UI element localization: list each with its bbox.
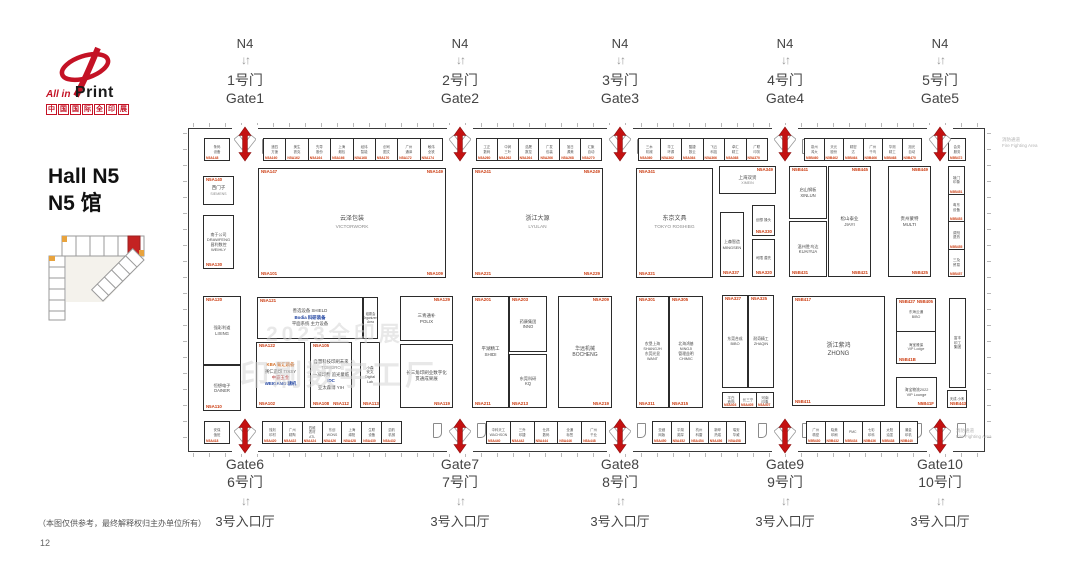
gate-marker-icon <box>449 418 471 454</box>
wall-ticks-bottom <box>193 453 980 457</box>
gate-label-en: Gate1 <box>226 90 264 106</box>
gate-label-en: Gate4 <box>766 90 804 106</box>
booth: 恒想电子 DAINERN5A110 <box>203 365 241 411</box>
booth: 云泽包装VICTORWORKN5A147N5A149N5A101N5A109 <box>258 168 446 278</box>
gate-label-zh: 7号门 <box>430 472 489 492</box>
booth-name: 浙江紫鸿 ZHONG <box>826 343 850 359</box>
fire-lane-note-top: 消防通道 Fire Fighting Area <box>1002 137 1038 149</box>
gate-label-zh: 8号门 <box>590 472 649 492</box>
booth-name: 长三角印刷业数字化 贯通成果展 <box>406 370 447 382</box>
booth: 司限 潜先N5A320 <box>752 239 775 277</box>
booth-code: N5A105 <box>313 344 329 348</box>
booth-code: N5A420 <box>264 439 276 443</box>
booth-name: 西门子 <box>212 185 226 191</box>
booth: KBA 新汇装备赛仁造印 TISSY中霸五金WEIGANG 精机N5A122N5… <box>256 342 305 408</box>
booth: 农垦上海 SHANGJH 东莞光显 WANTN5A301N5A311 <box>636 296 669 408</box>
booth: 北海鸿基 NINGJI 管理益明 CHIMICN5A305N5A315 <box>669 296 703 408</box>
booth-code: N5A249 <box>584 170 600 174</box>
booth-code: N5A327 <box>725 297 741 301</box>
booth-code: N5A325 <box>751 297 767 301</box>
gate-label-bottom: Gate88号门↓↑3号入口厅 <box>590 456 649 530</box>
booth-code: N5A448 <box>583 439 595 443</box>
two-way-arrow-icon: ↓↑ <box>441 51 479 70</box>
gate-label-top: N4↓↑5号门Gate5 <box>921 36 959 106</box>
booth-code: N5A407 <box>758 403 770 407</box>
two-way-arrow-icon: ↓↑ <box>590 492 649 511</box>
booth-code: N5A140 <box>206 178 222 182</box>
strip-booth: 全通 标签N5A446 <box>557 421 582 444</box>
gate-label-top: N4↓↑4号门Gate4 <box>766 36 804 106</box>
booth-name: 华远机械 BOCHENG <box>572 346 597 359</box>
two-way-arrow-icon: ↓↑ <box>910 492 969 511</box>
entrance-hall-label: 3号入口厅 <box>215 511 274 530</box>
booth-code: N5A362 <box>662 156 674 160</box>
booth-code: N5B431 <box>792 271 808 275</box>
booth-name: 富丰 印工 集团 <box>954 336 961 350</box>
entrance-hall-label: 3号入口厅 <box>755 511 814 530</box>
strip-booth: 晓美 印刷N5B432 <box>825 421 845 444</box>
booth-cell: 三及 贸易N5B457 <box>949 249 964 277</box>
strip-booth: 太阳 油墨N5B438 <box>880 421 900 444</box>
booth-code: N5A160 <box>265 156 277 160</box>
booth-code: N5A221 <box>475 272 491 276</box>
two-way-arrow-icon: ↓↑ <box>430 492 489 511</box>
strip-booth: 广州 千鸟N5B466 <box>863 138 884 161</box>
booth-code: N5A209 <box>593 298 609 302</box>
booth-name: 启山钢板 XINLUN <box>800 187 817 198</box>
two-way-arrow-icon: ↓↑ <box>601 51 639 70</box>
booth: 富丰 印工 集团 <box>949 298 966 388</box>
booth-code: N5A364 <box>683 156 695 160</box>
booth-name: 东莞科研 KQ <box>520 376 537 387</box>
n4-hall-label: N4 <box>921 36 959 51</box>
booth-code: N5B441 <box>792 168 808 172</box>
gate-label-zh: 3号门 <box>601 70 639 90</box>
strip-booth: 生联 设备N5A430 <box>361 421 382 444</box>
door-icon <box>758 423 767 438</box>
gate-marker-icon <box>774 126 796 162</box>
n4-hall-label: N4 <box>601 36 639 51</box>
booth: 小森 安文 Digital LabN5A113 <box>360 342 380 408</box>
booth-name: 温州胜鸟达 KUAIYUA <box>798 244 819 255</box>
strip-booth: 东创 WONSN5A426 <box>322 421 343 444</box>
strip-booth: 仕邦 数码N5A444 <box>534 421 559 444</box>
booth-code: N5A219 <box>593 402 609 406</box>
gate-label-top: N4↓↑2号门Gate2 <box>441 36 479 106</box>
booth-code: N5B440 <box>901 439 913 443</box>
booth-strip-top: 三木 机械N5A360华工 环源N5A362酷捷 数云N5A364飞云 科技N5… <box>638 138 768 161</box>
floorplan-page: All in Print 中国国际全印展 Hall N5 N5 馆 <box>0 0 1080 579</box>
gate-label-en: Gate8 <box>590 456 649 472</box>
booth-code: N5A129 <box>434 298 450 302</box>
booth: 西门子SIEMENSN5A140 <box>203 176 234 205</box>
booth-name: 平湖精工 SHIDI <box>482 346 500 358</box>
strip-booth: 泉州 鸿大N5B460 <box>804 138 825 161</box>
booth-strip-bottom: 亚细 网版N5A450平湖 英厚N5A452杭州 科雷N5A454新晔 热熔N5… <box>652 421 746 444</box>
booth: 创想 操头N5A330 <box>752 205 775 236</box>
booth-name: 南于公司 DRAWFENG 昌利数控 WEIHLY <box>207 232 230 253</box>
booth-code: N5A422 <box>284 439 296 443</box>
strip-booth: 新晔 热熔N5A456 <box>708 421 728 444</box>
booth-strip-top: 工正 数码N5A260中润 三叶N5A262浩晟 数控N5A264广发 包装N5… <box>476 138 602 161</box>
booth-code: N5A101 <box>261 272 277 276</box>
logo-print-text: Print <box>75 84 114 101</box>
strip-booth: 天元 股份N5B462 <box>824 138 845 161</box>
strip-booth: 三木 机械N5A360 <box>638 138 661 161</box>
logo-cn-char: 中 <box>46 104 57 115</box>
hall-title-zh: N5 馆 <box>48 190 119 217</box>
gate-label-en: Gate5 <box>921 90 959 106</box>
all-in-print-logo: All in Print 中国国际全印展 <box>46 46 136 115</box>
strip-booth: 广发 包装N5A266 <box>538 138 560 161</box>
booth-code: N5B417 <box>795 298 811 302</box>
booth-code: N5A428 <box>343 439 355 443</box>
booth-code: N5A149 <box>427 170 443 174</box>
booth: 温州胜鸟达 KUAIYUAN5B431 <box>789 221 827 277</box>
strip-booth: 先导 股份N5A164 <box>308 138 331 161</box>
gate-label-bottom: Gate1010号门↓↑3号入口厅 <box>910 456 969 530</box>
two-way-arrow-icon: ↓↑ <box>226 51 264 70</box>
two-way-arrow-icon: ↓↑ <box>755 492 814 511</box>
booth-code: N5A170 <box>377 156 389 160</box>
booth-code: N5B472 <box>950 156 962 160</box>
strip-booth: 亚细 网版N5A450 <box>652 421 672 444</box>
strip-booth: 广州 精陶N5A422 <box>282 421 303 444</box>
two-way-arrow-icon: ↓↑ <box>921 51 959 70</box>
booth: 浙江紫鸿 ZHONGN5B417N5B411 <box>792 296 885 406</box>
fire-lane-note-bottom: 消防通道 Fire Fighting Area <box>956 428 992 440</box>
booth-code: N5B434 <box>845 439 857 443</box>
booth: 耐奇精工 ZHAQINN5A325 <box>748 295 774 388</box>
booth-name: 浙江大源 <box>525 216 549 224</box>
booth-code: N5A321 <box>639 272 655 276</box>
booth: 松山泰业 JIAYIN5B445N5B421 <box>828 166 871 277</box>
strip-booth: 华测 精工N5B468 <box>882 138 903 161</box>
booth-name: 东京文具 <box>662 216 686 224</box>
booth-code: N5B466 <box>865 156 877 160</box>
booth-code: N5A442 <box>512 439 524 443</box>
booth-code: N5B41B <box>899 358 916 362</box>
strip-booth: 敏伟 全铁N5A174 <box>420 138 443 161</box>
disclaimer: （本图仅供参考，最终解释权归主办单位所有） <box>38 518 206 529</box>
booth-code: N5A368 <box>726 156 738 160</box>
strip-booth: 汇聚 自动N5A270 <box>580 138 602 161</box>
booth-code: N5A432 <box>383 439 395 443</box>
booth-code: N5A201 <box>475 298 491 302</box>
hall-title-en: Hall N5 <box>48 163 119 190</box>
page-number: 12 <box>40 538 50 548</box>
booth-code: N5A370 <box>748 156 760 160</box>
gate-marker-icon <box>774 418 796 454</box>
booth-name: 三青通补 POLIX <box>418 313 436 325</box>
booth-code: N5B430 <box>808 439 820 443</box>
booth-subname: VICTORWORK <box>336 225 369 230</box>
logo-allin-text: All in <box>46 89 70 100</box>
booth: 长三角印刷业数字化 贯通成果展N5A119 <box>400 344 453 408</box>
strip-booth: 上海 绵阳N5A428 <box>341 421 362 444</box>
booth-code: N5A119 <box>434 402 450 406</box>
logo-cn-char: 展 <box>118 104 129 115</box>
gate-marker-icon <box>609 418 631 454</box>
gate-marker-icon <box>929 126 951 162</box>
strip-booth: 瑞安 华威N5A458 <box>726 421 746 444</box>
booth-cell: 境门 印象N5B451 <box>949 167 964 194</box>
venue-overview-minimap <box>46 232 148 324</box>
gate-label-zh: 6号门 <box>215 472 274 492</box>
logo-cn-char: 印 <box>106 104 117 115</box>
booth-name: 组委会 Organizers Area <box>363 312 378 324</box>
booth-code: N5B464 <box>845 156 857 160</box>
booth: 善选设备 SHIELDBodia 科研装备平面系统 主力设备N5A121 <box>257 297 363 339</box>
booth-code: N5A454 <box>691 439 703 443</box>
strip-booth: 中润 三叶N5A262 <box>497 138 519 161</box>
gate-label-zh: 1号门 <box>226 70 264 90</box>
booth-code: N5A264 <box>520 156 532 160</box>
booth-code: N5A108 <box>313 402 329 406</box>
booth-name: 贵州蒙特 MULTI <box>901 216 919 228</box>
booth: 天成 小禾N5B443 <box>947 390 967 408</box>
booth-strip-top: 条码 设备N5A148 <box>204 138 230 161</box>
booth-code: N5B445 <box>852 168 868 172</box>
strip-booth: 卓汇 精工N5A368 <box>724 138 747 161</box>
booth-code: N5A424 <box>304 439 316 443</box>
booth-code: N5A148 <box>206 156 218 160</box>
n4-hall-label: N4 <box>441 36 479 51</box>
booth-code: N5A452 <box>673 439 685 443</box>
booth-code: N5B443 <box>950 402 966 406</box>
strip-booth: 飞云 科技N5A366 <box>703 138 726 161</box>
logo-cn-char: 国 <box>58 104 69 115</box>
booth-cell: 粤东 设备N5B453 <box>949 194 964 222</box>
booth-code: N5A426 <box>324 439 336 443</box>
strip-booth: 七彩 印科N5B436 <box>862 421 882 444</box>
booth-name: 东莞合成 BIBO <box>727 337 742 347</box>
gate-label-bottom: Gate99号门↓↑3号入口厅 <box>755 456 814 530</box>
booth-name: 强彩利道 LIXING <box>214 325 231 336</box>
booth-code: N5A450 <box>654 439 666 443</box>
strip-booth: 旭光 自动N5B470 <box>902 138 923 161</box>
booth: 组委会 Organizers Area <box>363 297 378 339</box>
booth-code: N5B411 <box>795 400 811 404</box>
gate-label-en: Gate3 <box>601 90 639 106</box>
booth-name: 创想 操头 <box>756 218 771 223</box>
entrance-hall-label: 3号入口厅 <box>430 511 489 530</box>
gate-label-en: Gate7 <box>430 456 489 472</box>
gate-label-zh: 5号门 <box>921 70 959 90</box>
strip-booth: 四维 表材 ATLN5A424 <box>302 421 323 444</box>
booth-name: 小森 安文 Digital Lab <box>365 366 375 385</box>
booth-name: 海宝物流2022 VIP Lounge <box>905 388 929 398</box>
booth-strip-top: 递四 方速N5A160美生 铁克N5A162先导 股份N5A164上海 烟包N5… <box>263 138 443 161</box>
booth: 华远机械 BOCHENGN5A209N5A219 <box>558 296 612 408</box>
booth-code: N5A211 <box>475 402 491 406</box>
booth-name: 松山泰业 JIAYI <box>841 216 859 228</box>
booth-code: N5A456 <box>710 439 722 443</box>
gate-marker-icon <box>234 418 256 454</box>
gate-label-bottom: Gate66号门↓↑3号入口厅 <box>215 456 274 530</box>
booth-code: N5B432 <box>827 439 839 443</box>
booth-cell: 调剂 退热N5B455 <box>949 221 964 249</box>
booth-code: N5B457 <box>950 272 962 276</box>
booth-strip-bottom: 安保 值班N5A418 <box>204 421 230 444</box>
gate-label-zh: 10号门 <box>910 472 969 492</box>
gate-label-zh: 2号门 <box>441 70 479 90</box>
booth-code: N5A270 <box>582 156 594 160</box>
gate-label-zh: 4号门 <box>766 70 804 90</box>
booth-logo-line: WEIGANG 精机 <box>265 381 296 387</box>
booth-cell: 河南 印象N5A407 <box>756 393 773 407</box>
booth-code: N5A120 <box>206 298 222 302</box>
booth: 自慧科技印刷未来TOMORO一减印费 追光童临IDC亚太森博 YIHN5A105… <box>310 342 352 408</box>
strip-booth: 创司 图文N5A170 <box>375 138 398 161</box>
door-icon <box>433 423 442 438</box>
strip-booth: 安保 值班N5A418 <box>204 421 230 444</box>
gate-label-zh: 9号门 <box>755 472 814 492</box>
booth-code: N5A174 <box>422 156 434 160</box>
booth-code: N5A330 <box>756 230 772 234</box>
wall-ticks-top <box>193 123 980 127</box>
booth-code: N5A320 <box>756 271 772 275</box>
booth-code: N5A164 <box>310 156 322 160</box>
booth-code: N5A315 <box>672 402 688 406</box>
booth-code: N5B468 <box>884 156 896 160</box>
booth-code: N5A405 <box>741 403 753 407</box>
booth-cell: 平白 首饰N5A403 <box>723 393 739 407</box>
booth-code: N5A403 <box>724 403 736 407</box>
strip-booth: 精密 达N5B464 <box>843 138 864 161</box>
strip-booth: 上海 烟包N5A166 <box>330 138 353 161</box>
gate-label-bottom: Gate77号门↓↑3号入口厅 <box>430 456 489 530</box>
booth-code: N5A262 <box>499 156 511 160</box>
booth-code: N5B436 <box>864 439 876 443</box>
booth-code: N5A444 <box>536 439 548 443</box>
booth: 上海双贤XIMEINN5A349 <box>719 166 776 194</box>
booth-code: N5A109 <box>427 272 443 276</box>
booth-name: 药康集团 INNO <box>520 319 537 330</box>
door-icon <box>637 423 646 438</box>
booth-name: 耐奇精工 ZHAQIN <box>753 337 768 347</box>
booth-name: 上海双贤 <box>739 175 757 181</box>
booth: 贵州蒙特 MULTIN5B449N5B425 <box>888 166 931 277</box>
booth-code: N5B427 <box>899 300 915 304</box>
gate-label-en: Gate2 <box>441 90 479 106</box>
strip-booth: 广联 印务N5A370 <box>746 138 769 161</box>
booth-code: N5A260 <box>478 156 490 160</box>
booth: 东莞合成 BIBON5A327 <box>722 295 748 388</box>
booth-code: N5B425 <box>912 271 928 275</box>
logo-cn-char: 全 <box>94 104 105 115</box>
gate-marker-icon <box>449 126 471 162</box>
booth-code: N5A121 <box>260 299 276 303</box>
strip-booth: 蚀刻 印材N5A420 <box>262 421 283 444</box>
strip-booth: 三乔 印捷N5A442 <box>510 421 535 444</box>
booth: 东海云通 BIBO海宝雅保 VIP LodgeN5B427N5B405N5B41… <box>896 298 936 364</box>
booth-subname: LYULAN <box>528 225 546 230</box>
logo-cn-char: 国 <box>70 104 81 115</box>
booth-code: N5A305 <box>672 298 688 302</box>
booth-code: N5B405 <box>917 300 933 304</box>
strip-booth: 潮金 印机N5B440 <box>899 421 919 444</box>
booth-logo-line: 平面系统 主力设备 <box>292 321 328 327</box>
booth-code: N5B438 <box>882 439 894 443</box>
strip-booth: 旭日 源美N5A268 <box>559 138 581 161</box>
gate-label-en: Gate6 <box>215 456 274 472</box>
booth-code: N5A430 <box>363 439 375 443</box>
booth-logo-line: 亚太森博 YIH <box>318 385 344 391</box>
strip-booth: 递四 方速N5A160 <box>263 138 286 161</box>
two-way-arrow-icon: ↓↑ <box>766 51 804 70</box>
strip-booth: 广州 精密N5B430 <box>806 421 826 444</box>
booth-name: 北海鸿基 NINGJI 管理益明 CHIMIC <box>678 342 693 362</box>
gate-label-en: Gate10 <box>910 456 969 472</box>
booth-code: N5A458 <box>728 439 740 443</box>
booth-code: N5A311 <box>639 402 655 406</box>
gate-marker-icon <box>929 418 951 454</box>
two-way-arrow-icon: ↓↑ <box>215 492 274 511</box>
booth-name: 恒想电子 DAINER <box>214 383 231 394</box>
strip-booth: 杭州 科雷N5A454 <box>689 421 709 444</box>
booth-code: N5B462 <box>826 156 838 160</box>
strip-booth: 广州 千业N5A448 <box>581 421 606 444</box>
strip-booth: 中科天工 WACHSONN5A440 <box>486 421 511 444</box>
strip-booth: 工正 数码N5A260 <box>476 138 498 161</box>
strip-booth: 平湖 英厚N5A452 <box>671 421 691 444</box>
booth-code: N5A147 <box>261 170 277 174</box>
booth-code: N5A446 <box>559 439 571 443</box>
booth-name: 司限 潜先 <box>756 256 771 261</box>
booth: 东莞科研 KQN5A213 <box>509 354 547 408</box>
booth-subname: SIEMENS <box>210 192 226 196</box>
booth-strip-bottom: 中科天工 WACHSONN5A440三乔 印捷N5A442仕邦 数码N5A444… <box>486 421 606 444</box>
strip-booth: 条码 设备N5A148 <box>204 138 230 161</box>
booth-code: N5A268 <box>561 156 573 160</box>
booth-code: N5A418 <box>206 439 218 443</box>
booth-subname: TOKYO ROSHIBG <box>654 225 694 230</box>
booth-code: N5A203 <box>512 298 528 302</box>
strip-booth: 美生 铁克N5A162 <box>285 138 308 161</box>
booth-code: N5B41F <box>918 402 934 406</box>
gate-label-top: N4↓↑3号门Gate3 <box>601 36 639 106</box>
booth-strip-bottom: 蚀刻 印材N5A420广州 精陶N5A422四维 表材 ATLN5A424东创 … <box>262 421 402 444</box>
booth-code: N5A266 <box>540 156 552 160</box>
logo-chinese-text: 中国国际全印展 <box>46 104 136 115</box>
booth: 药康集团 INNON5A203 <box>509 296 547 352</box>
gate-marker-icon <box>234 126 256 162</box>
booth: 境门 印象N5B451粤东 设备N5B453调剂 退热N5B455三及 贸易N5… <box>948 166 965 277</box>
gate-label-top: N4↓↑1号门Gate1 <box>226 36 264 106</box>
booth-code: N5A162 <box>287 156 299 160</box>
booth: 强彩利道 LIXINGN5A120 <box>203 296 241 365</box>
booth-code: N5A130 <box>206 263 222 267</box>
booth-code: N5B421 <box>852 271 868 275</box>
booth-code: N5A113 <box>363 402 379 406</box>
booth-name: 上森智造 MINGSEN <box>723 239 742 249</box>
strip-booth: 浩晟 数控N5A264 <box>518 138 540 161</box>
booth-cell: 长三宁N5A405 <box>739 393 756 407</box>
booth-strip-top: 泉州 鸿大N5B460天元 股份N5B462精密 达N5B464广州 千鸟N5B… <box>804 138 922 161</box>
booth-code: N5A301 <box>639 298 655 302</box>
entrance-hall-label: 3号入口厅 <box>590 511 649 530</box>
hall-title: Hall N5 N5 馆 <box>48 163 119 218</box>
booth: 启山钢板 XINLUNN5B441 <box>789 166 827 219</box>
wall-ticks-right <box>987 133 991 447</box>
booth: 平湖精工 SHIDIN5A201N5A211 <box>472 296 509 408</box>
wall-ticks-left <box>183 133 187 447</box>
booth-code: N5A337 <box>723 271 739 275</box>
booth-code: N5A440 <box>488 439 500 443</box>
booth-code: N5B470 <box>904 156 916 160</box>
booth: 海宝物流2022 VIP LoungeN5B41F <box>896 377 937 408</box>
